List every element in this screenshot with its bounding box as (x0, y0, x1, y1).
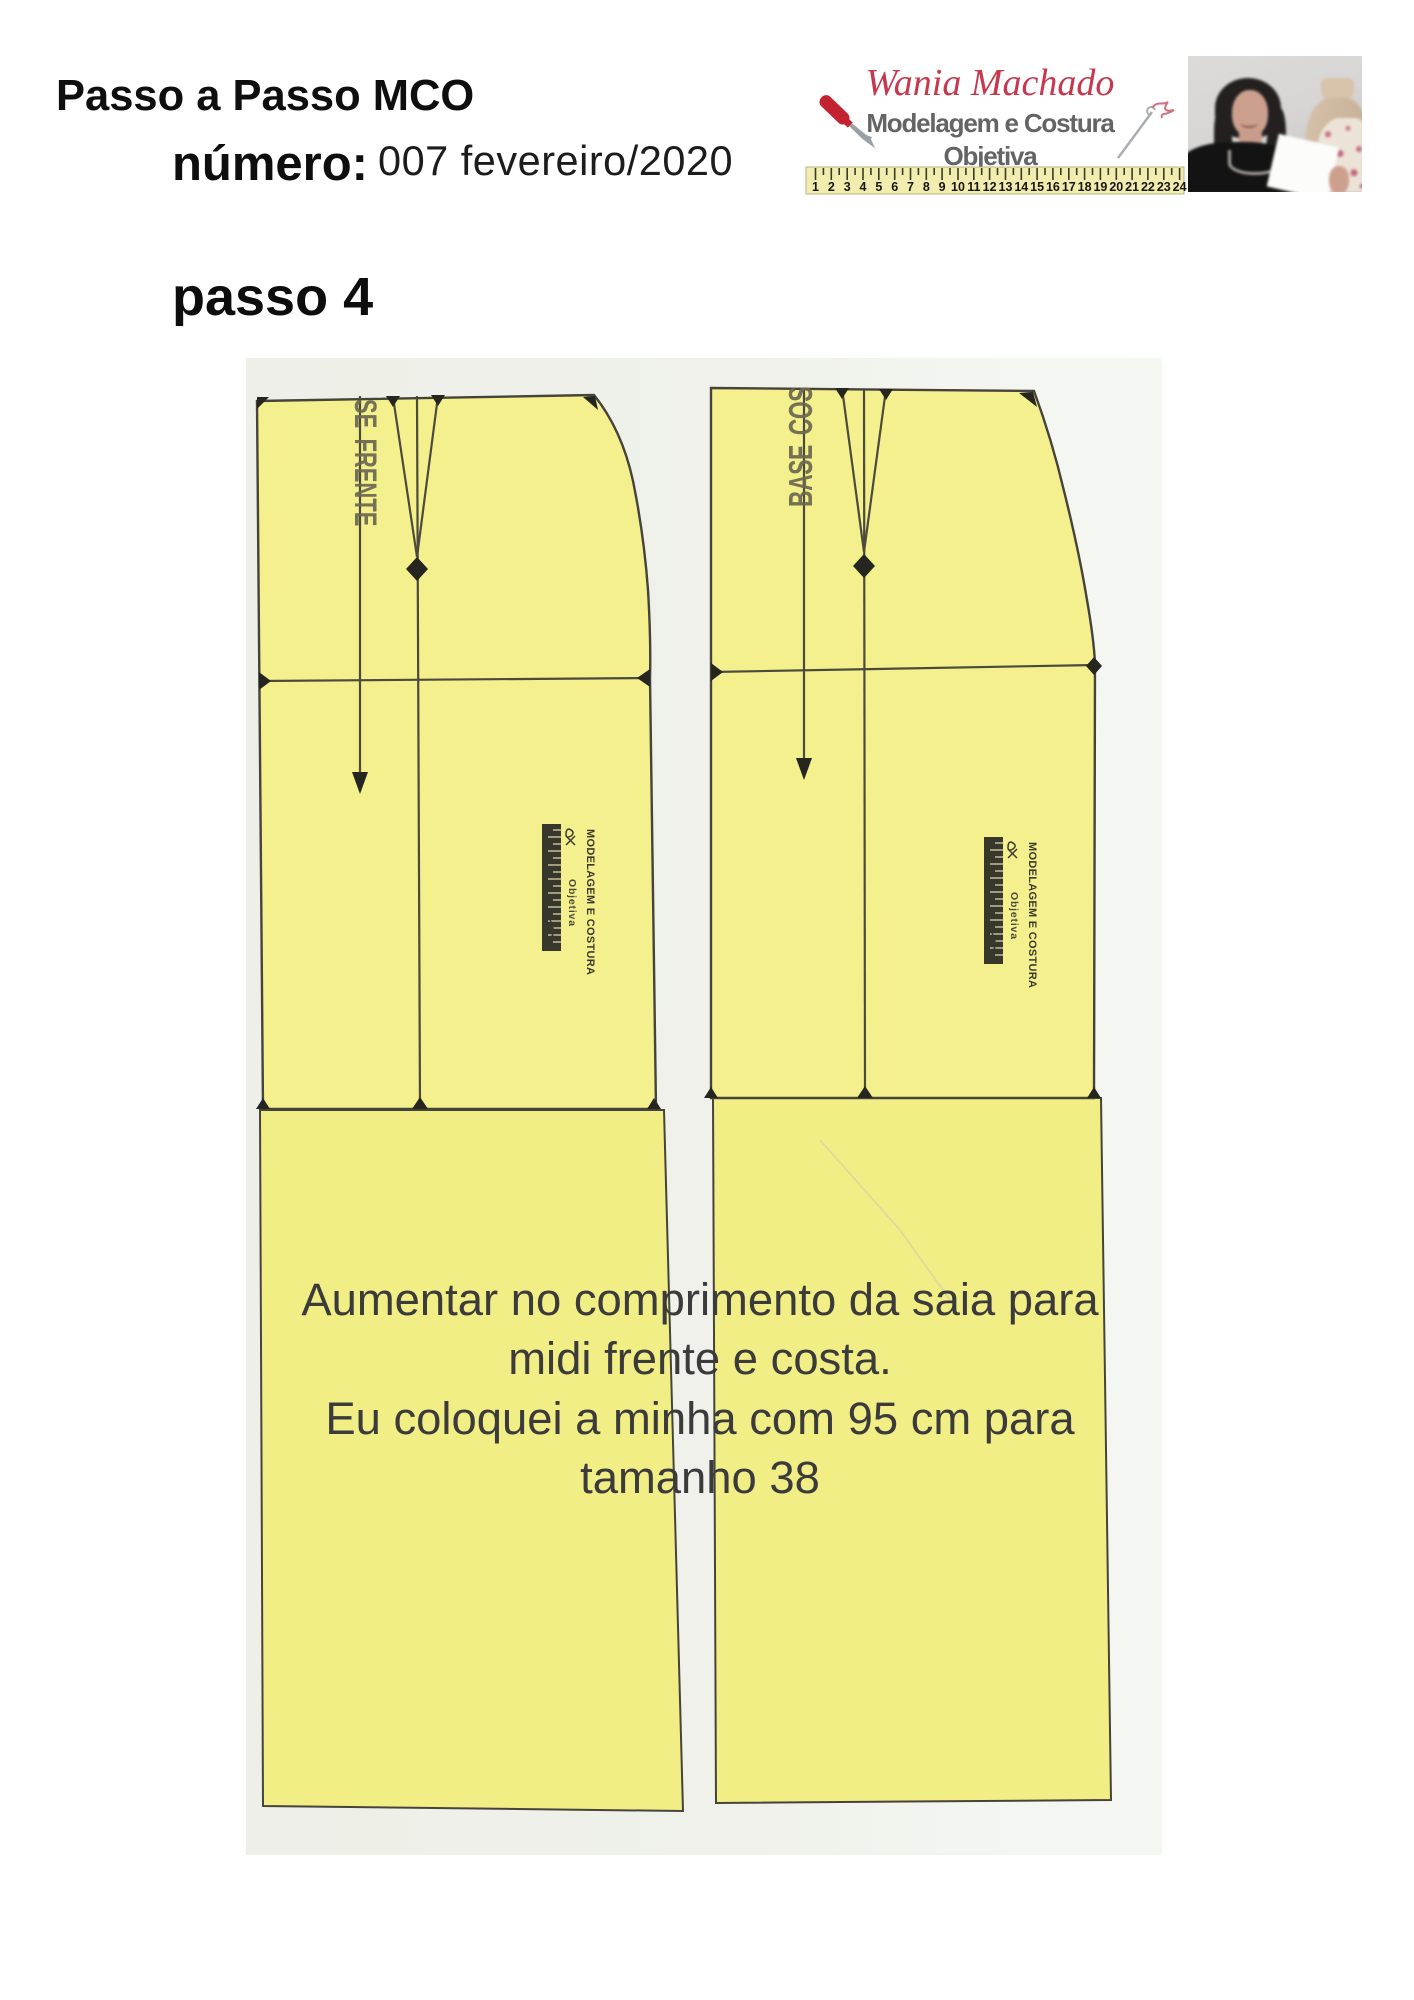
svg-text:MODELAGEM E COSTURA: MODELAGEM E COSTURA (1026, 842, 1038, 988)
svg-text:Objetiva: Objetiva (1008, 892, 1020, 940)
svg-text:BASE COS: BASE COS (783, 387, 820, 507)
svg-text:Objetiva: Objetiva (566, 879, 578, 927)
svg-text:MODELAGEM E COSTURA: MODELAGEM E COSTURA (584, 829, 596, 975)
svg-text:SE FRENTE: SE FRENTE (348, 399, 384, 526)
